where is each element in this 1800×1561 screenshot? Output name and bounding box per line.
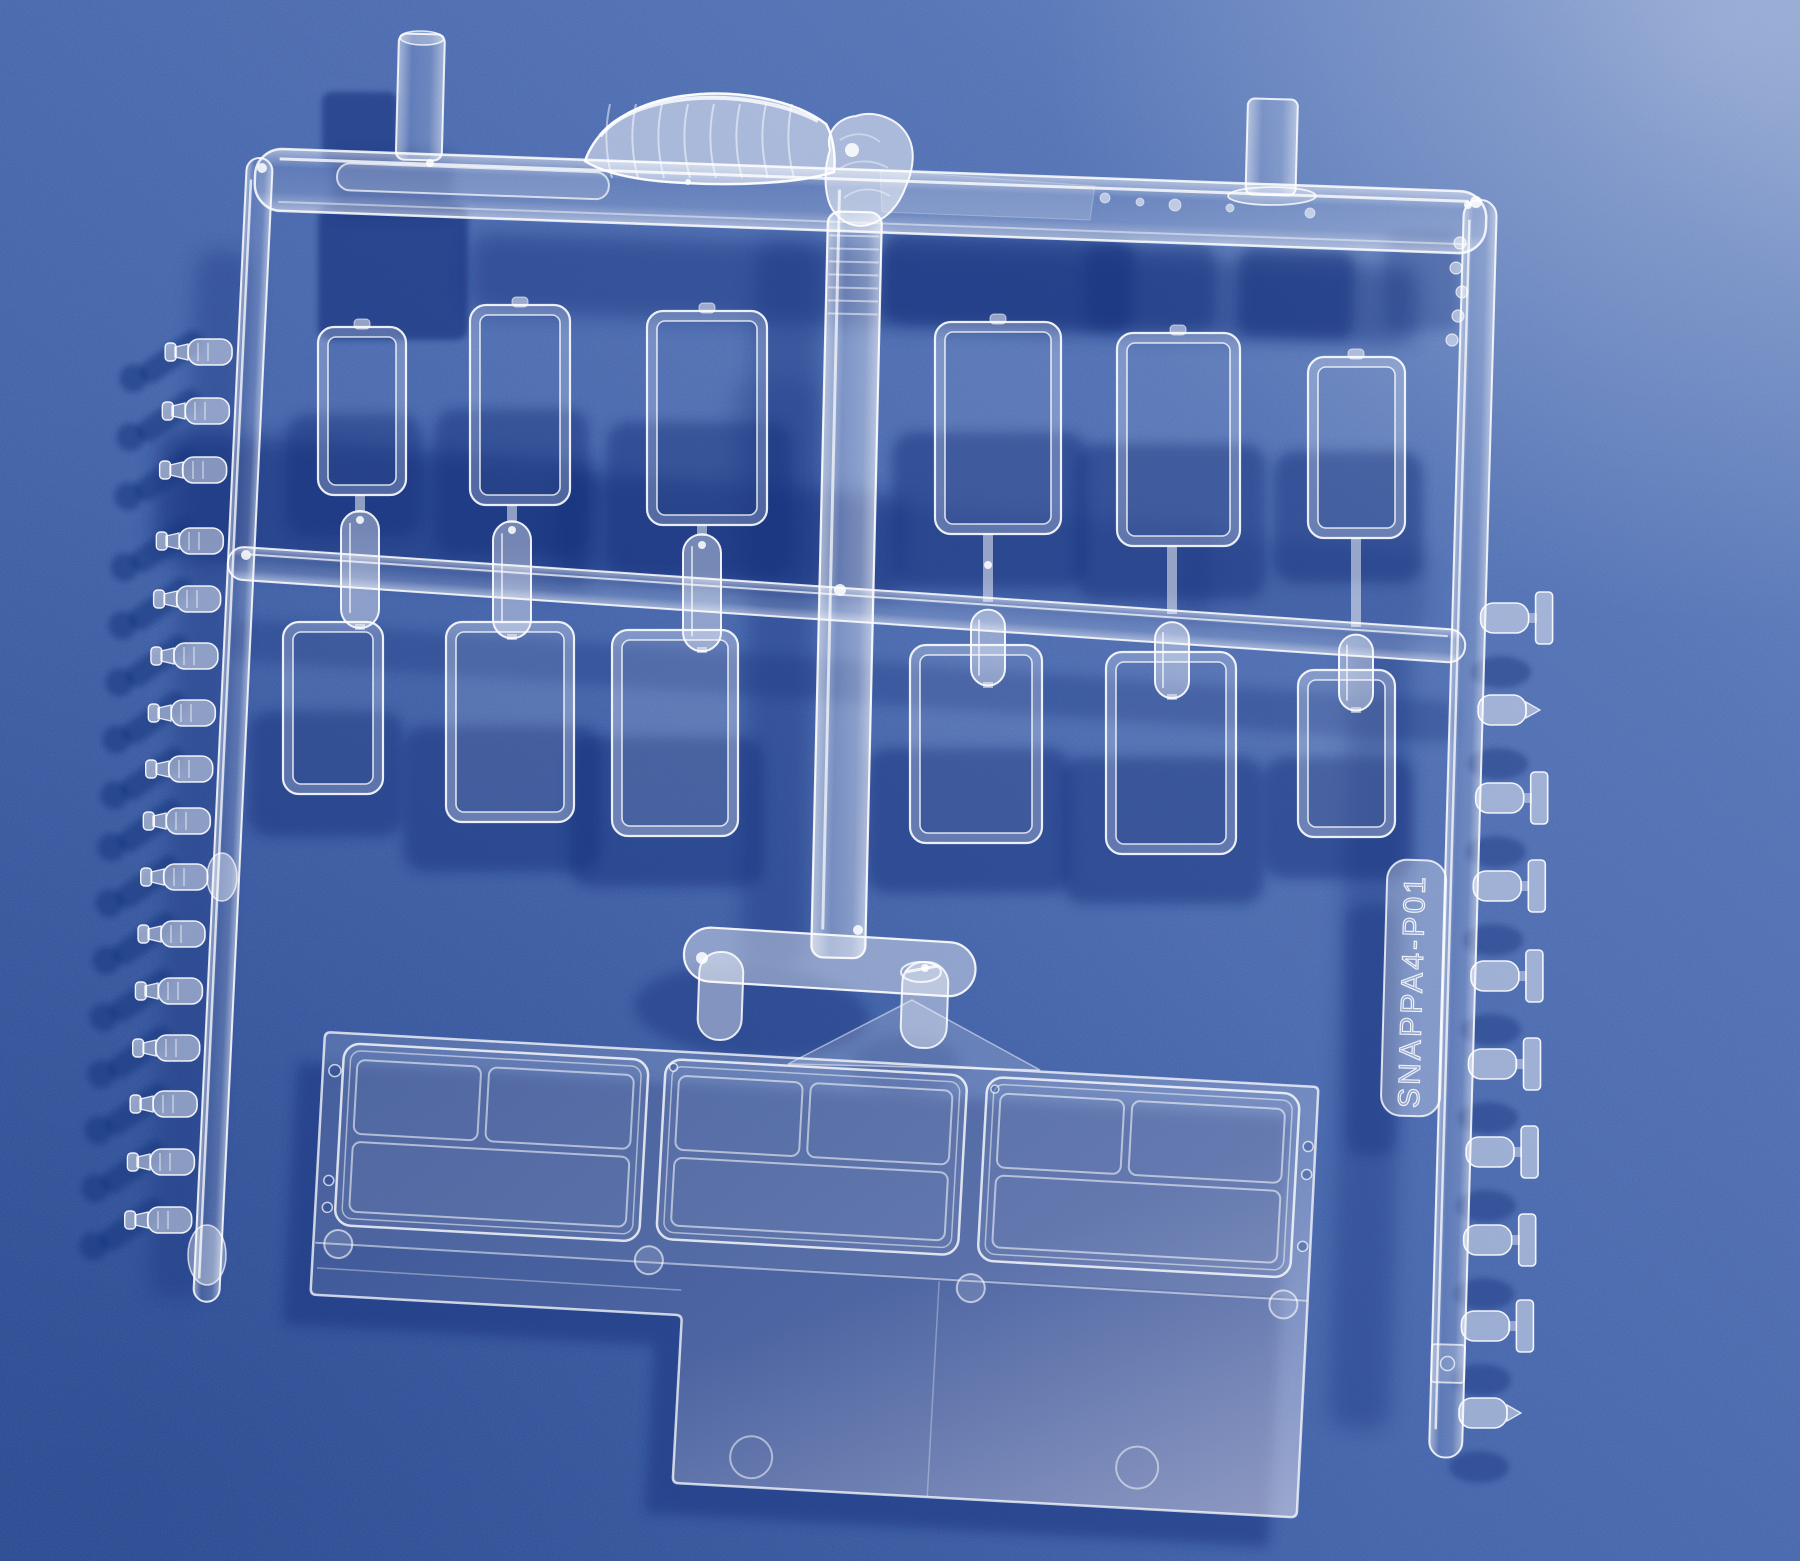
svg-text:SNAPPA4-P01: SNAPPA4-P01: [1393, 876, 1432, 1109]
